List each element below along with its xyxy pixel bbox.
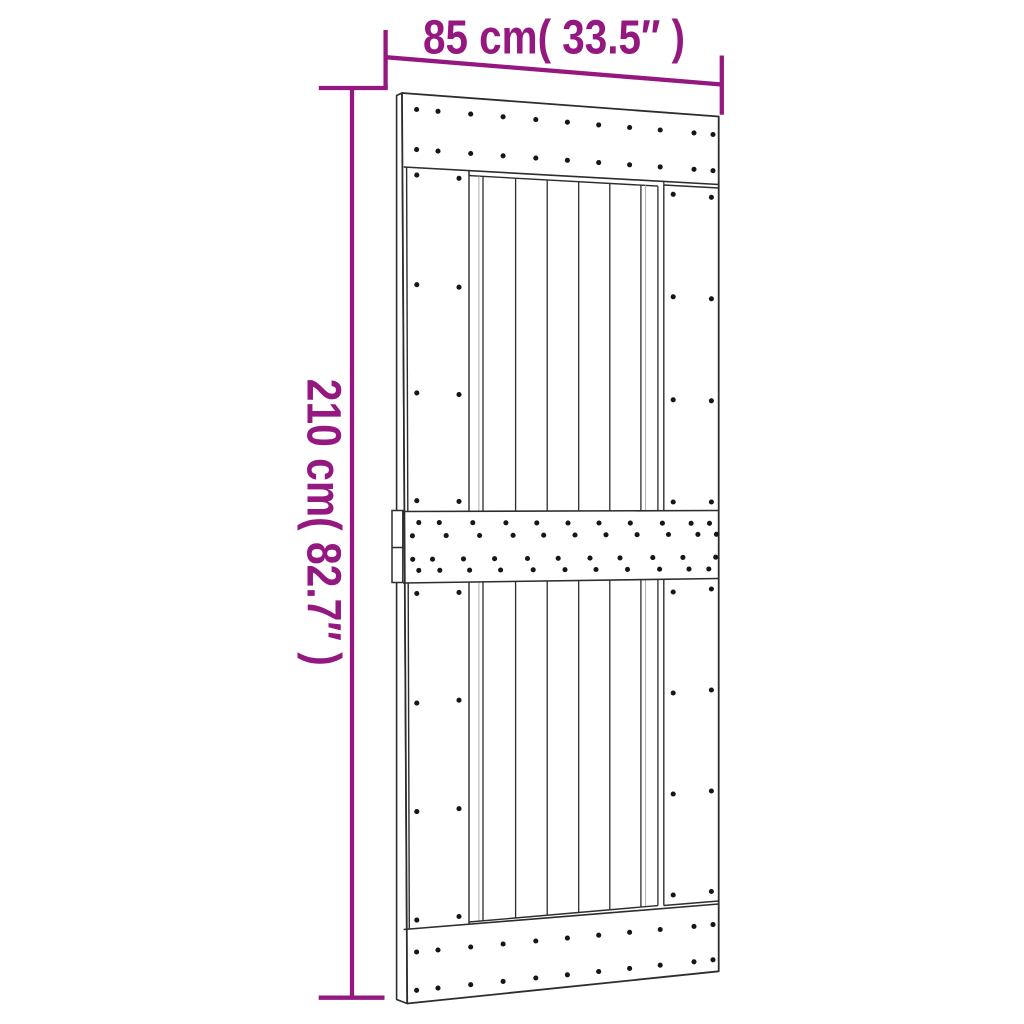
svg-text:85 cm( 33.5″ ): 85 cm( 33.5″ ) [423, 11, 685, 65]
svg-text:210 cm( 82.7″ ): 210 cm( 82.7″ ) [297, 379, 351, 666]
